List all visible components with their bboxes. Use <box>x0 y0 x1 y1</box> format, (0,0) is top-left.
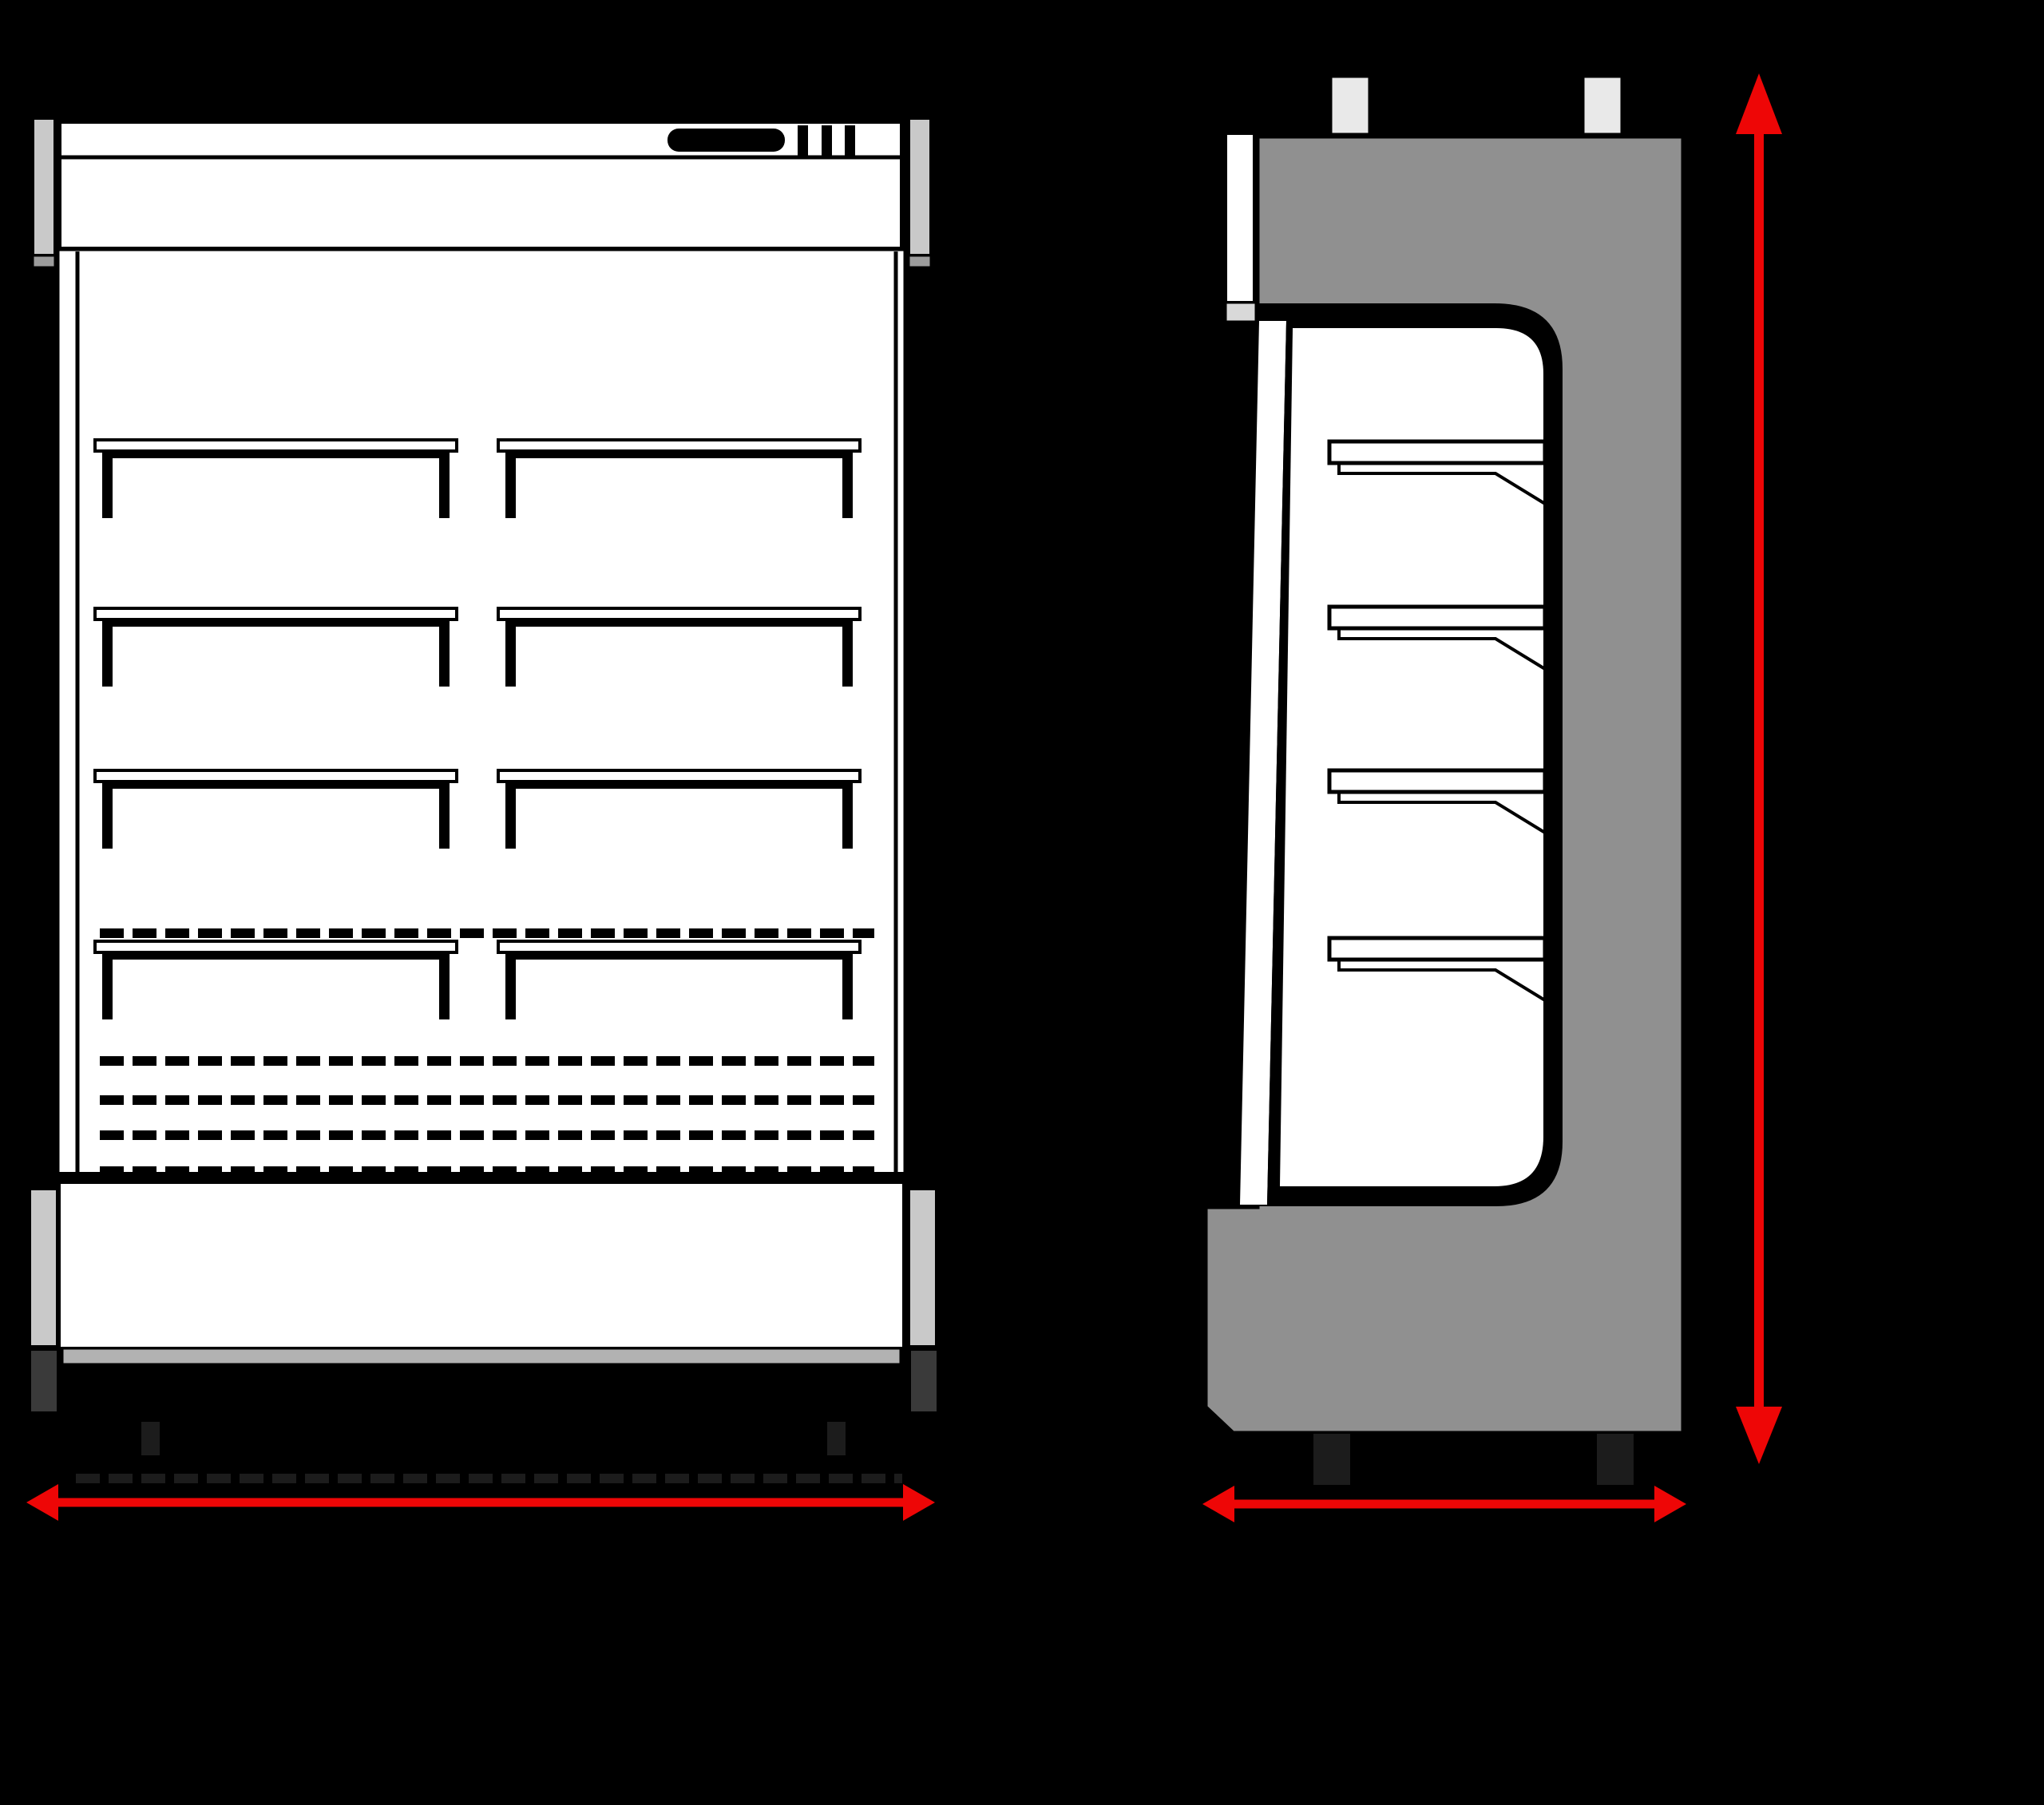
front-foot-right <box>911 1351 937 1411</box>
side-depth-arrow <box>1202 1486 1686 1522</box>
canopy-vent-bar-1 <box>798 125 808 156</box>
height-arrow <box>1736 73 1782 1464</box>
front-canopy-bracket-left <box>33 118 55 255</box>
side-foot-rear <box>1597 1434 1634 1485</box>
side-canopy-trim-cap <box>1226 303 1256 322</box>
diagram-canvas <box>0 0 2044 1805</box>
front-width-arrowhead-right <box>903 1484 935 1521</box>
front-canopy-bracket-right-cap <box>909 255 931 267</box>
side-depth-arrowhead-left <box>1202 1486 1234 1522</box>
canopy-vent-bar-3 <box>845 125 855 156</box>
front-width-arrowhead-left <box>26 1484 58 1521</box>
front-foot-left <box>31 1351 57 1411</box>
side-view <box>1202 77 1686 1522</box>
side-canopy-trim <box>1226 133 1254 303</box>
front-leg-right <box>827 1422 846 1455</box>
canopy-vent-bar-2 <box>822 125 832 156</box>
front-canopy-bracket-left-cap <box>33 255 55 267</box>
base-kick-strip <box>62 1348 901 1364</box>
side-foot-front <box>1313 1434 1350 1485</box>
base-plinth-shadow <box>62 1364 901 1422</box>
front-view <box>26 118 937 1521</box>
base-front-panel <box>59 1182 904 1348</box>
brand-logo-pill <box>667 129 785 152</box>
side-depth-arrowhead-right <box>1654 1486 1686 1522</box>
technical-drawing-svg <box>0 0 2044 1805</box>
side-top-tab-rear <box>1583 77 1622 136</box>
base-bracket-right <box>909 1189 937 1347</box>
front-canopy-bracket-right <box>909 118 931 255</box>
side-top-tab-front <box>1331 77 1369 136</box>
front-width-arrow <box>26 1484 935 1521</box>
front-cabinet-body <box>57 249 905 1175</box>
base-bracket-left <box>30 1189 57 1347</box>
height-arrowhead-bottom <box>1736 1407 1782 1464</box>
height-arrowhead-top <box>1736 73 1782 134</box>
front-leg-left <box>141 1422 160 1455</box>
